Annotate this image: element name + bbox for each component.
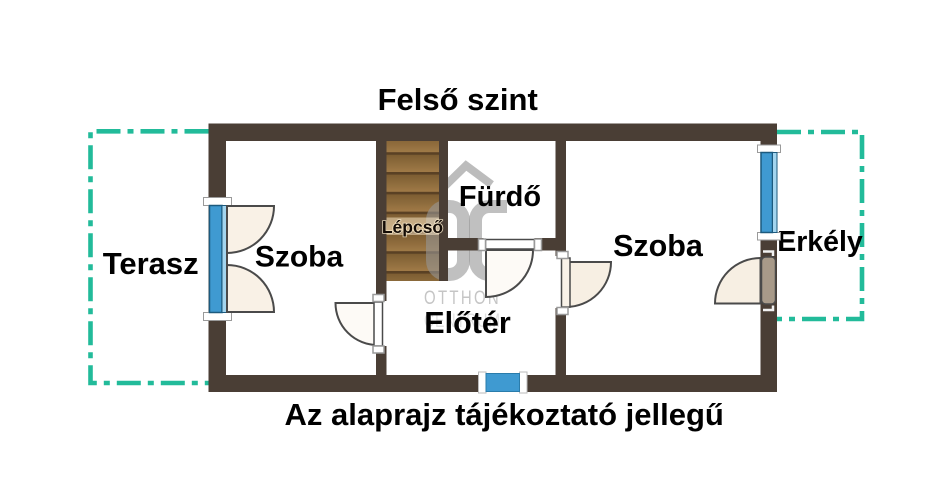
svg-text:Előtér: Előtér (424, 306, 511, 340)
svg-text:Lépcső: Lépcső (382, 217, 443, 237)
svg-text:Terasz: Terasz (103, 246, 199, 281)
svg-text:Szoba: Szoba (613, 229, 704, 263)
svg-text:Szoba: Szoba (255, 241, 344, 274)
svg-text:Erkély: Erkély (777, 226, 863, 258)
svg-text:Az alaprajz tájékoztató jelleg: Az alaprajz tájékoztató jellegű (285, 397, 724, 432)
svg-text:Fürdő: Fürdő (459, 181, 541, 213)
svg-text:Felső szint: Felső szint (378, 82, 538, 117)
